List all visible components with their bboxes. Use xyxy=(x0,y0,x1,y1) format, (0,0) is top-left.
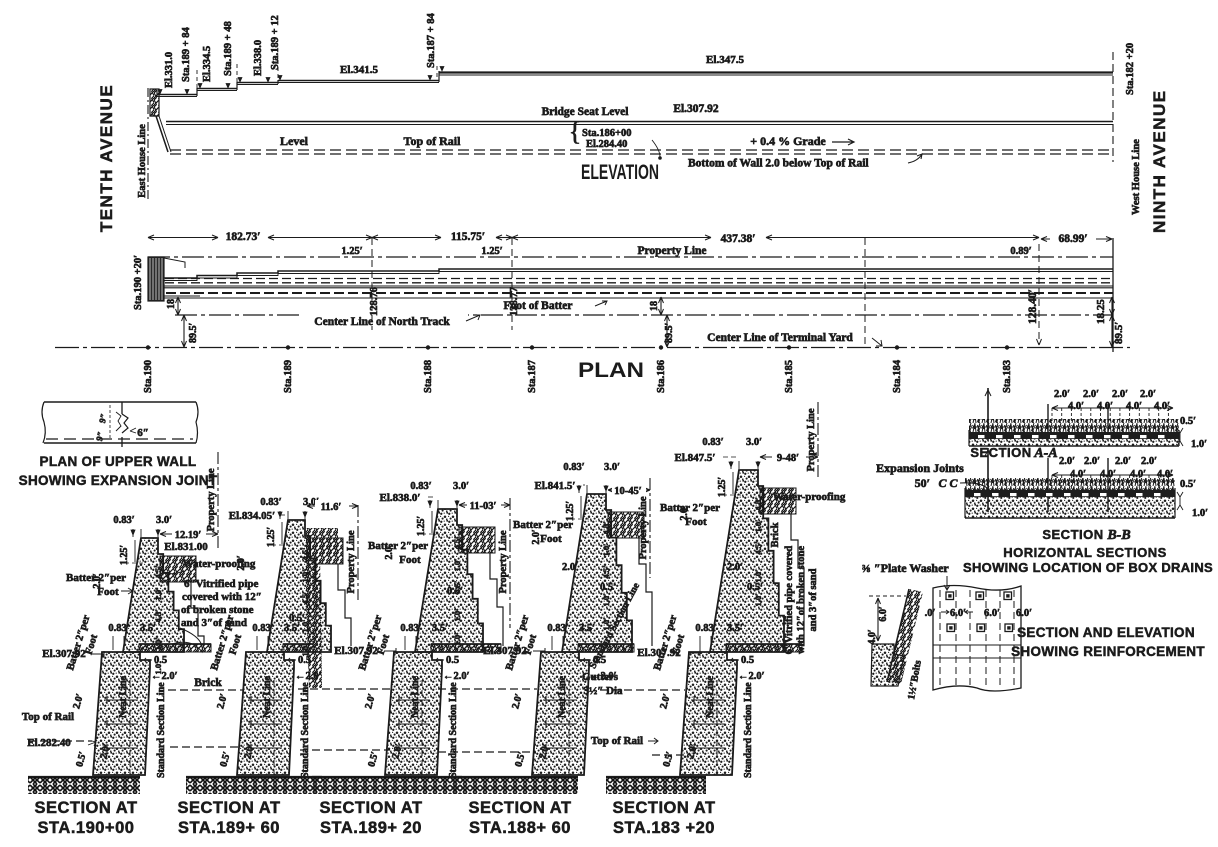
svg-text:Neat Line: Neat Line xyxy=(118,676,129,719)
svg-text:←2.0′: ←2.0′ xyxy=(738,671,765,682)
svg-text:1.25′: 1.25′ xyxy=(416,516,427,537)
svg-text:11-03′: 11-03′ xyxy=(470,501,497,512)
svg-text:4.0′: 4.0′ xyxy=(1154,401,1170,412)
svg-text:10-45′: 10-45′ xyxy=(614,486,641,497)
svg-text:0.5: 0.5 xyxy=(741,655,754,666)
svg-text:2.0′: 2.0′ xyxy=(562,562,578,573)
svg-text:NINTH AVENUE: NINTH AVENUE xyxy=(1150,89,1169,233)
svg-text:0.83′: 0.83′ xyxy=(410,481,431,492)
svg-text:1.0′: 1.0′ xyxy=(153,637,163,650)
svg-text:C C: C C xyxy=(938,476,958,490)
svg-text:Brick: Brick xyxy=(770,522,781,547)
svg-text:El.341.5: El.341.5 xyxy=(340,64,378,76)
svg-text:2.0′: 2.0′ xyxy=(1054,389,1070,400)
svg-text:1.25′: 1.25′ xyxy=(717,477,728,498)
svg-text:4.0′: 4.0′ xyxy=(1068,401,1084,412)
svg-text:El.838.0′: El.838.0′ xyxy=(380,492,421,504)
svg-text:STA.190+00: STA.190+00 xyxy=(38,819,135,837)
svg-text:128.77: 128.77 xyxy=(509,287,520,316)
svg-text:Batter 2″per: Batter 2″per xyxy=(368,540,428,552)
svg-text:Property Line: Property Line xyxy=(637,245,706,257)
svg-text:Level: Level xyxy=(280,134,309,148)
svg-text:0.83′: 0.83′ xyxy=(695,623,716,634)
svg-text:SECTION AT: SECTION AT xyxy=(177,799,280,817)
svg-text:SECTION AT: SECTION AT xyxy=(612,799,715,817)
svg-text:Foot: Foot xyxy=(540,533,562,545)
svg-text:ELEVATION: ELEVATION xyxy=(581,161,659,184)
svg-text:1.0′: 1.0′ xyxy=(753,593,763,606)
svg-text:SECTION: SECTION xyxy=(970,445,1031,460)
svg-text:Property Line: Property Line xyxy=(206,468,217,531)
svg-text:←2.0′: ←2.0′ xyxy=(443,671,470,682)
svg-text:4.5′: 4.5′ xyxy=(153,565,163,578)
svg-text:PLAN OF UPPER WALL: PLAN OF UPPER WALL xyxy=(40,454,197,469)
svg-text:Standard Section Line: Standard Section Line xyxy=(156,682,167,778)
svg-text:1.0′: 1.0′ xyxy=(753,519,763,532)
svg-text:″Plate Washer: ″Plate Washer xyxy=(874,561,949,575)
svg-text:STA.189+ 60: STA.189+ 60 xyxy=(178,819,280,837)
svg-text:1.0′: 1.0′ xyxy=(601,593,611,606)
svg-text:Sta.183: Sta.183 xyxy=(1002,360,1013,393)
svg-text:2.0′: 2.0′ xyxy=(1115,456,1131,467)
svg-text:3.0′: 3.0′ xyxy=(604,462,620,473)
svg-text:Property Line: Property Line xyxy=(806,408,817,471)
svg-text:Foot: Foot xyxy=(97,586,119,598)
svg-text:←2.0′: ←2.0′ xyxy=(151,671,178,682)
svg-text:El.307.92: El.307.92 xyxy=(334,645,378,657)
svg-text:6.0′: 6.0′ xyxy=(878,606,889,622)
svg-text:⅜: ⅜ xyxy=(862,563,870,575)
svg-text:1.0′: 1.0′ xyxy=(601,543,611,556)
svg-text:Center Line of Terminal Yard: Center Line of Terminal Yard xyxy=(707,332,853,344)
svg-text:0.83′: 0.83′ xyxy=(260,497,281,508)
svg-text:Property Line: Property Line xyxy=(346,530,357,593)
svg-text:0.83′: 0.83′ xyxy=(113,515,134,526)
svg-text:0.5′: 0.5′ xyxy=(747,582,763,593)
svg-text:Standard Section Line: Standard Section Line xyxy=(300,682,311,778)
svg-text:El.847.5′: El.847.5′ xyxy=(675,452,716,464)
svg-text:Sta.186+00: Sta.186+00 xyxy=(582,128,631,139)
svg-text:Sta.185: Sta.185 xyxy=(784,360,795,393)
svg-text:Sta.188: Sta.188 xyxy=(423,360,434,393)
svg-text:3.5′: 3.5′ xyxy=(140,623,156,634)
svg-text:1.0′: 1.0′ xyxy=(153,587,163,600)
svg-text:Sta.189 + 48: Sta.189 + 48 xyxy=(223,21,234,76)
svg-text:68.99′: 68.99′ xyxy=(1058,233,1087,245)
svg-text:SECTION AND ELEVATION: SECTION AND ELEVATION xyxy=(1017,625,1195,640)
svg-text:El.307.92: El.307.92 xyxy=(637,647,681,659)
svg-text:6″Vitrified pipe covered: 6″Vitrified pipe covered xyxy=(784,546,795,655)
svg-text:3.0′: 3.0′ xyxy=(746,437,762,448)
svg-text:1.0′: 1.0′ xyxy=(452,558,462,571)
svg-text:1.25′: 1.25′ xyxy=(119,545,130,566)
svg-text:2.0′: 2.0′ xyxy=(727,562,743,573)
svg-text:El.307.92: El.307.92 xyxy=(42,648,86,660)
svg-text:4.5′: 4.5′ xyxy=(452,536,462,549)
svg-text:El.331.0: El.331.0 xyxy=(164,52,175,88)
svg-text:182.73′: 182.73′ xyxy=(226,231,261,243)
svg-text:Sta.189 + 84: Sta.189 + 84 xyxy=(181,27,192,82)
svg-text:1.0′: 1.0′ xyxy=(753,569,763,582)
svg-text:0.83′: 0.83′ xyxy=(547,623,568,634)
svg-text:3.0′: 3.0′ xyxy=(453,481,469,492)
svg-text:3½″ Dia: 3½″ Dia xyxy=(583,685,623,697)
svg-text:1.0′: 1.0′ xyxy=(1191,439,1207,450)
svg-text:2.0′: 2.0′ xyxy=(1141,456,1157,467)
svg-text:1.25′: 1.25′ xyxy=(341,246,362,257)
svg-text:Bridge Seat Level: Bridge Seat Level xyxy=(542,106,629,118)
svg-text:of broken stone: of broken stone xyxy=(181,604,254,616)
svg-text:covered with 12″: covered with 12″ xyxy=(182,591,262,603)
svg-text:6″: 6″ xyxy=(137,427,149,439)
svg-text:SECTION: SECTION xyxy=(1042,527,1103,542)
svg-text:+ 0.4 % Grade: + 0.4 % Grade xyxy=(750,134,826,148)
svg-text:Top of Rail: Top of Rail xyxy=(22,711,74,723)
svg-text:Sta.189: Sta.189 xyxy=(283,360,294,393)
svg-text:with 12″of broken stone: with 12″of broken stone xyxy=(796,546,807,654)
svg-text:Neat Line: Neat Line xyxy=(410,676,421,719)
svg-text:Sta.190: Sta.190 xyxy=(143,360,154,393)
svg-text:9-48′: 9-48′ xyxy=(777,453,799,464)
svg-text:Neat Line: Neat Line xyxy=(705,676,716,719)
svg-text:Neat Line: Neat Line xyxy=(557,676,568,719)
svg-text:Sta.184: Sta.184 xyxy=(892,359,903,393)
svg-text:1.0′: 1.0′ xyxy=(452,632,462,645)
svg-text:128.40′: 128.40′ xyxy=(1027,289,1039,324)
svg-text:El.338.0: El.338.0 xyxy=(253,40,264,76)
svg-text:Standard Section Line: Standard Section Line xyxy=(743,682,754,778)
svg-text:4.5′: 4.5′ xyxy=(601,521,611,534)
svg-text:.0′: .0′ xyxy=(925,608,936,619)
svg-text:2.0′: 2.0′ xyxy=(1084,456,1100,467)
svg-text:HORIZONTAL SECTIONS: HORIZONTAL SECTIONS xyxy=(1003,545,1167,560)
svg-text:128.76: 128.76 xyxy=(369,287,380,316)
svg-text:0.83′: 0.83′ xyxy=(400,623,421,634)
svg-text:Foot: Foot xyxy=(399,554,421,566)
svg-text:East House Line: East House Line xyxy=(137,124,148,198)
svg-text:El.307.92: El.307.92 xyxy=(483,645,527,657)
svg-text:0.5: 0.5 xyxy=(154,655,167,666)
svg-text:2.0′: 2.0′ xyxy=(1140,389,1156,400)
svg-text:El.307.92: El.307.92 xyxy=(673,103,719,115)
svg-text:0.5′: 0.5′ xyxy=(289,613,305,624)
svg-text:2.0′: 2.0′ xyxy=(1059,456,1075,467)
svg-text:Neat Line: Neat Line xyxy=(262,676,273,719)
svg-text:SECTION AT: SECTION AT xyxy=(319,799,422,817)
svg-text:West House Line: West House Line xyxy=(1131,139,1142,215)
svg-text:12.19′: 12.19′ xyxy=(175,530,202,541)
svg-text:Bottom of Wall 2.0 below Top o: Bottom of Wall 2.0 below Top of Rail xyxy=(688,158,869,170)
svg-text:0.5: 0.5 xyxy=(446,655,459,666)
svg-text:SHOWING LOCATION OF BOX DRAINS: SHOWING LOCATION OF BOX DRAINS xyxy=(963,560,1213,575)
svg-text:TENTH AVENUE: TENTH AVENUE xyxy=(97,84,116,232)
svg-text:Sta.189 + 12: Sta.189 + 12 xyxy=(270,15,281,70)
svg-text:Expansion Joints: Expansion Joints xyxy=(876,461,964,475)
svg-text:11.6′: 11.6′ xyxy=(321,502,342,513)
svg-text:El.347.5: El.347.5 xyxy=(706,54,744,66)
svg-text:SECTION AT: SECTION AT xyxy=(34,799,137,817)
svg-text:El.831.00: El.831.00 xyxy=(164,541,208,553)
svg-text:El.334.5: El.334.5 xyxy=(202,46,213,82)
svg-text:Property Line: Property Line xyxy=(638,496,649,559)
svg-text:El.284.40: El.284.40 xyxy=(586,139,627,150)
svg-text:2.0′: 2.0′ xyxy=(1083,389,1099,400)
svg-text:Water-proofing: Water-proofing xyxy=(183,558,256,570)
svg-text:0.83′: 0.83′ xyxy=(563,462,584,473)
svg-text:3.5′: 3.5′ xyxy=(579,623,595,634)
svg-text:18.25: 18.25 xyxy=(1095,299,1107,324)
svg-text:SHOWING EXPANSION JOINT: SHOWING EXPANSION JOINT xyxy=(19,473,218,488)
svg-text:3.5′: 3.5′ xyxy=(432,623,448,634)
svg-text:4.5′: 4.5′ xyxy=(753,541,763,554)
svg-text:Standard Section Line: Standard Section Line xyxy=(448,682,459,778)
svg-text:1.0′: 1.0′ xyxy=(1192,508,1208,519)
svg-text:0.5′: 0.5′ xyxy=(1180,479,1196,490)
svg-text:1.0′: 1.0′ xyxy=(452,608,462,621)
svg-text:Sta.190 +20′: Sta.190 +20′ xyxy=(133,255,144,310)
svg-text:A-A: A-A xyxy=(1033,446,1057,461)
svg-text:437.38′: 437.38′ xyxy=(721,233,756,245)
svg-text:Water-proofing: Water-proofing xyxy=(773,491,846,503)
svg-text:STA.189+ 20: STA.189+ 20 xyxy=(320,819,422,837)
svg-text:50′: 50′ xyxy=(915,476,930,490)
svg-text:3.0′: 3.0′ xyxy=(156,515,172,526)
svg-text:0.5′: 0.5′ xyxy=(1180,416,1196,427)
svg-text:STA.188+ 60: STA.188+ 60 xyxy=(469,819,571,837)
svg-text:2.0′: 2.0′ xyxy=(1112,389,1128,400)
svg-text:4.5′: 4.5′ xyxy=(153,609,163,622)
svg-text:4.0′: 4.0′ xyxy=(867,629,878,645)
svg-text:0.5′: 0.5′ xyxy=(447,586,463,597)
svg-text:4.5′: 4.5′ xyxy=(601,565,611,578)
svg-text:3.5′: 3.5′ xyxy=(727,623,743,634)
svg-text:{: { xyxy=(569,117,581,146)
svg-text:6.0′: 6.0′ xyxy=(984,608,1000,619)
svg-text:0.83′: 0.83′ xyxy=(108,623,129,634)
svg-text:4.0′: 4.0′ xyxy=(1126,401,1142,412)
svg-text:89.5′: 89.5′ xyxy=(1113,322,1125,344)
svg-text:0.89′: 0.89′ xyxy=(1010,246,1031,257)
svg-text:and 3″of sand: and 3″of sand xyxy=(808,568,819,631)
svg-text:Sta.187 + 84: Sta.187 + 84 xyxy=(426,13,437,68)
svg-text:1.25′: 1.25′ xyxy=(266,527,277,548)
svg-text:Batter 2″per: Batter 2″per xyxy=(513,519,573,531)
svg-text:SECTION AT: SECTION AT xyxy=(468,799,571,817)
svg-text:El.282.40: El.282.40 xyxy=(27,737,71,749)
svg-text:Sta.187: Sta.187 xyxy=(527,360,538,393)
svg-text:4.5′: 4.5′ xyxy=(753,497,763,510)
svg-text:18: 18 xyxy=(166,299,177,309)
svg-text:Brick: Brick xyxy=(194,677,222,689)
svg-text:B-B: B-B xyxy=(1106,528,1130,543)
svg-text:STA.183 +20: STA.183 +20 xyxy=(613,819,715,837)
svg-text:18: 18 xyxy=(649,301,660,311)
svg-text:0.83′: 0.83′ xyxy=(252,623,273,634)
svg-text:Top of Rail: Top of Rail xyxy=(591,735,643,747)
svg-text:6.0′: 6.0′ xyxy=(950,608,966,619)
svg-text:4.0′: 4.0′ xyxy=(1097,401,1113,412)
svg-text:Batter 2″per: Batter 2″per xyxy=(66,572,126,584)
svg-text:Gutters: Gutters xyxy=(582,671,619,683)
svg-text:El.841.5′: El.841.5′ xyxy=(535,480,576,492)
svg-text:Sta.186: Sta.186 xyxy=(656,360,667,393)
svg-text:6.0′: 6.0′ xyxy=(1016,608,1032,619)
svg-text:SHOWING REINFORCEMENT: SHOWING REINFORCEMENT xyxy=(1011,644,1205,659)
svg-text:6″Vitrified pipe: 6″Vitrified pipe xyxy=(184,578,259,590)
svg-text:3.5′: 3.5′ xyxy=(284,623,300,634)
svg-text:Property Line: Property Line xyxy=(498,530,509,593)
svg-text:El.834.05′: El.834.05′ xyxy=(229,510,276,522)
svg-text:0.83′: 0.83′ xyxy=(702,437,723,448)
svg-text:89.5′: 89.5′ xyxy=(664,323,675,344)
svg-text:Top of Rail: Top of Rail xyxy=(404,134,462,148)
svg-text:Batter 2″per: Batter 2″per xyxy=(660,502,720,514)
svg-text:0.5′: 0.5′ xyxy=(600,582,616,593)
svg-text:115.75′: 115.75′ xyxy=(451,231,485,243)
svg-text:Foot: Foot xyxy=(685,516,707,528)
svg-text:89.5′: 89.5′ xyxy=(188,323,199,344)
svg-text:and 3″of sand: and 3″of sand xyxy=(181,617,247,629)
svg-text:Center Line of North Track: Center Line of North Track xyxy=(314,316,450,328)
svg-text:PLAN: PLAN xyxy=(578,359,644,382)
svg-text:Sta.182 +20: Sta.182 +20 xyxy=(1125,43,1136,95)
svg-text:1.25′: 1.25′ xyxy=(481,246,502,257)
